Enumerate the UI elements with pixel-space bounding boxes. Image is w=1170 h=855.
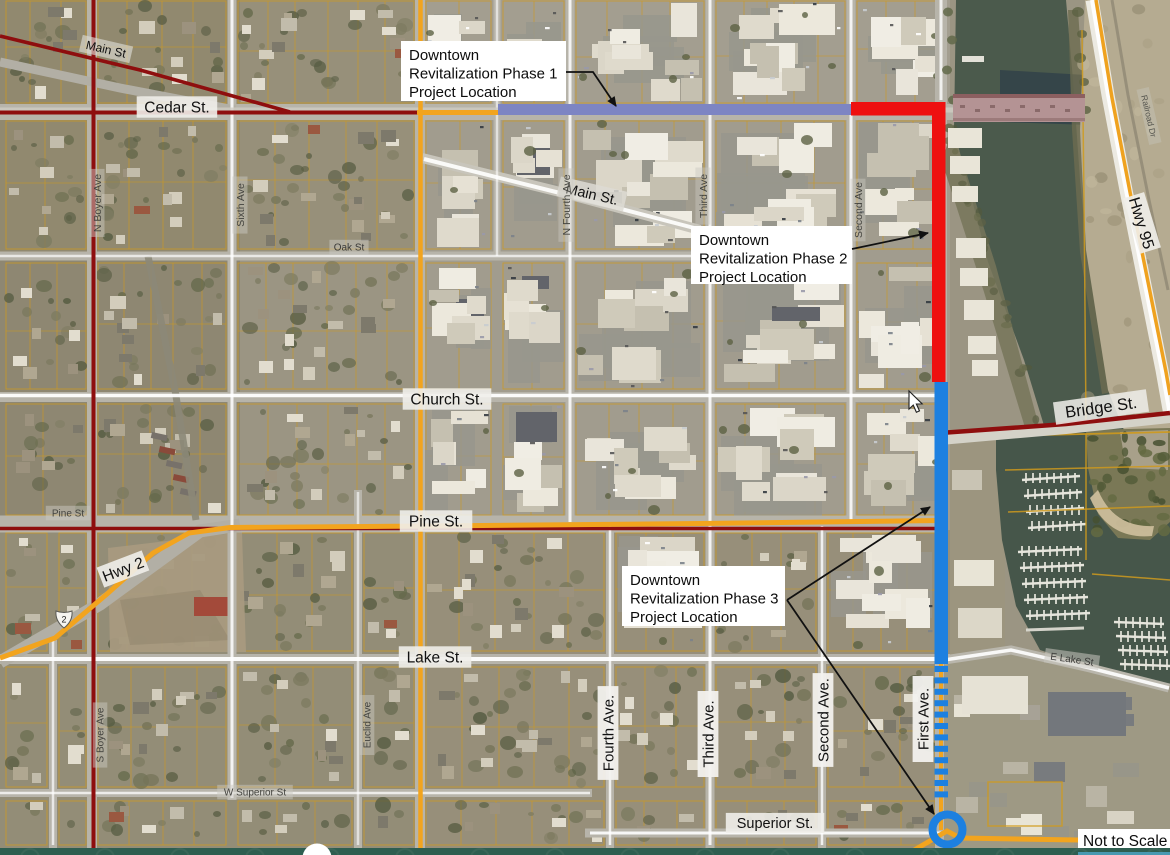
svg-text:Superior St.: Superior St.: [737, 816, 814, 832]
svg-text:Oak St: Oak St: [334, 243, 365, 254]
svg-text:Revitalization Phase 3: Revitalization Phase 3: [630, 591, 778, 608]
svg-text:Second Ave: Second Ave: [853, 182, 865, 238]
svg-text:Fourth Ave.: Fourth Ave.: [600, 695, 617, 771]
svg-text:Not to Scale: Not to Scale: [1083, 833, 1167, 850]
svg-text:Second Ave.: Second Ave.: [815, 678, 832, 762]
svg-text:Project Location: Project Location: [409, 84, 517, 101]
svg-text:Downtown: Downtown: [409, 47, 479, 64]
svg-text:Third Ave.: Third Ave.: [700, 700, 717, 767]
svg-text:N Fourth Ave: N Fourth Ave: [561, 174, 573, 235]
svg-text:S Boyer Ave: S Boyer Ave: [96, 707, 107, 762]
svg-text:Downtown: Downtown: [699, 232, 769, 249]
svg-text:Church St.: Church St.: [410, 392, 483, 409]
svg-text:Lake St.: Lake St.: [407, 650, 464, 667]
svg-text:Pine St: Pine St: [52, 509, 84, 520]
svg-text:Project Location: Project Location: [699, 269, 807, 286]
svg-text:2: 2: [61, 615, 66, 625]
svg-text:Sixth Ave: Sixth Ave: [235, 183, 247, 227]
svg-text:Revitalization Phase 2: Revitalization Phase 2: [699, 251, 847, 268]
svg-text:First Ave.: First Ave.: [915, 688, 932, 750]
svg-text:Euclid Ave: Euclid Ave: [363, 701, 374, 748]
svg-text:Project Location: Project Location: [630, 609, 738, 626]
svg-text:Revitalization Phase 1: Revitalization Phase 1: [409, 66, 557, 83]
svg-text:W Superior St: W Superior St: [224, 788, 286, 799]
svg-text:Downtown: Downtown: [630, 572, 700, 589]
svg-text:Pine St.: Pine St.: [409, 514, 463, 531]
svg-text:Cedar St.: Cedar St.: [144, 100, 209, 117]
svg-text:Third Ave: Third Ave: [698, 174, 710, 218]
svg-text:N Boyer Ave: N Boyer Ave: [92, 174, 104, 232]
